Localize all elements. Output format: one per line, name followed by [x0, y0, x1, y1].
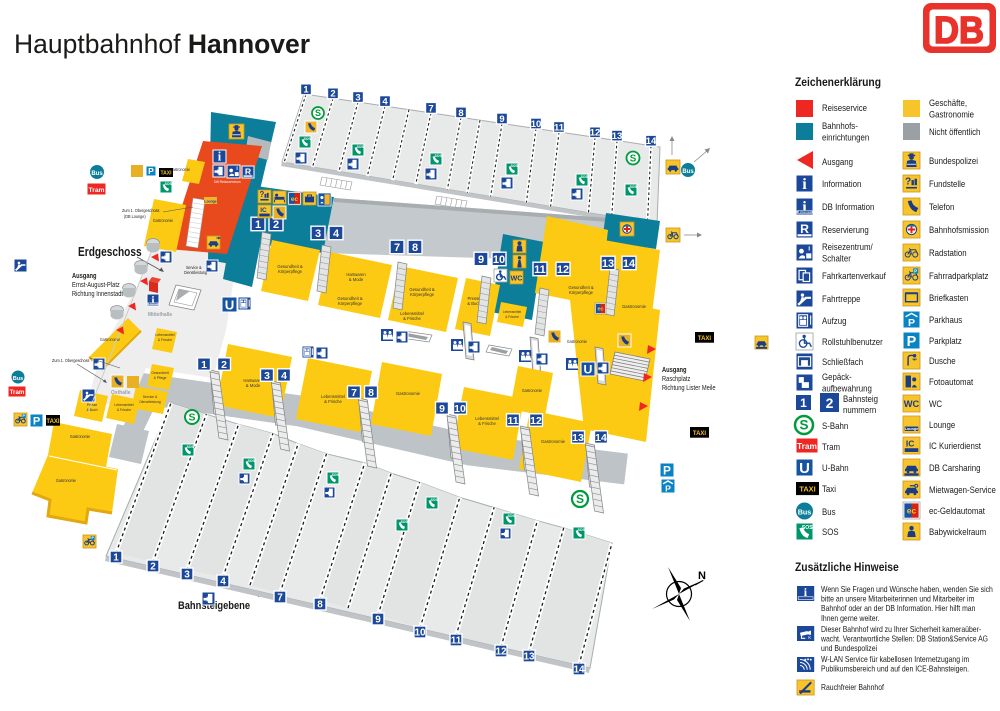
svg-text:ec: ec	[597, 306, 603, 312]
svg-text:Rauchfreier Bahnhof: Rauchfreier Bahnhof	[821, 682, 885, 692]
svg-text:12: 12	[530, 415, 542, 427]
svg-text:10: 10	[531, 119, 542, 130]
svg-text:Dusche: Dusche	[929, 355, 956, 366]
svg-text:Körperpflege: Körperpflege	[278, 269, 303, 274]
svg-text:ec-Geldautomat: ec-Geldautomat	[929, 505, 985, 516]
svg-text:8: 8	[412, 242, 418, 254]
svg-text:Lebensmittel: Lebensmittel	[114, 403, 133, 407]
svg-text:TAXI: TAXI	[698, 336, 711, 342]
svg-text:& Frische: & Frische	[505, 315, 519, 319]
svg-text:P: P	[908, 317, 915, 329]
svg-text:i: i	[808, 245, 810, 252]
svg-text:Richtung Innenstadt: Richtung Innenstadt	[72, 291, 123, 299]
svg-text:SOS: SOS	[165, 182, 173, 186]
svg-text:Gastronomie: Gastronomie	[396, 391, 421, 396]
svg-text:2: 2	[826, 395, 834, 411]
svg-text:S: S	[799, 418, 808, 433]
svg-text:13: 13	[612, 131, 623, 142]
svg-text:1: 1	[113, 553, 119, 564]
svg-text:Reservierung: Reservierung	[822, 224, 869, 235]
svg-text:SOS: SOS	[511, 164, 519, 168]
svg-text:Briefkasten: Briefkasten	[929, 292, 968, 303]
svg-text:4: 4	[333, 228, 340, 240]
svg-text:Erdgeschoss: Erdgeschoss	[78, 245, 142, 259]
svg-text:3: 3	[355, 93, 360, 104]
svg-text:11: 11	[554, 122, 565, 133]
svg-text:8: 8	[317, 600, 323, 611]
svg-text:Tram: Tram	[88, 187, 104, 194]
svg-text:& Frische: & Frische	[158, 338, 172, 342]
svg-text:14: 14	[623, 258, 636, 270]
svg-text:Service &: Service &	[143, 395, 158, 399]
svg-text:P: P	[907, 334, 917, 350]
svg-text:N: N	[698, 570, 706, 582]
svg-text:Körperpflege: Körperpflege	[410, 292, 435, 297]
svg-text:SOS: SOS	[630, 185, 638, 189]
svg-text:R: R	[245, 166, 252, 176]
svg-text:Gastronomie: Gastronomie	[541, 439, 566, 444]
svg-text:4: 4	[220, 577, 226, 588]
svg-text:Gastronomie: Gastronomie	[522, 388, 542, 393]
svg-text:Bahnhofs-: Bahnhofs-	[822, 120, 858, 131]
svg-text:i: i	[218, 150, 222, 164]
svg-text:P: P	[663, 463, 671, 477]
svg-text:K: K	[808, 635, 811, 640]
svg-text:Osthalle: Osthalle	[111, 390, 131, 396]
svg-text:SOS: SOS	[304, 137, 312, 141]
svg-text:12: 12	[495, 647, 507, 658]
svg-text:1: 1	[303, 85, 309, 96]
svg-text:DB: DB	[934, 10, 984, 52]
svg-text:Lebensmittel: Lebensmittel	[155, 333, 174, 337]
svg-text:Richtung Lister Meile: Richtung Lister Meile	[662, 385, 716, 393]
svg-text:7: 7	[394, 242, 400, 254]
svg-text:Gastronomie: Gastronomie	[567, 339, 587, 344]
svg-text:Schalter: Schalter	[822, 253, 851, 264]
svg-text:P: P	[665, 483, 671, 493]
svg-text:Zeichenerklärung: Zeichenerklärung	[795, 76, 881, 89]
svg-text:2: 2	[273, 219, 279, 231]
svg-text:Bus: Bus	[91, 171, 103, 177]
svg-text:9: 9	[499, 114, 504, 125]
svg-text:Bundespolizei: Bundespolizei	[929, 155, 978, 166]
svg-text:S: S	[630, 153, 637, 164]
svg-text:SOS: SOS	[431, 498, 439, 502]
svg-text:Gastronomie: Gastronomie	[153, 218, 173, 223]
svg-text:Mittelhalle: Mittelhalle	[148, 312, 172, 318]
svg-text:7: 7	[277, 593, 283, 604]
svg-text:Schließfach: Schließfach	[822, 356, 863, 367]
svg-text:& Frische: & Frische	[403, 316, 421, 321]
svg-text:Zum 1. Obergeschoss: Zum 1. Obergeschoss	[52, 358, 89, 363]
svg-text:Lounge: Lounge	[905, 427, 918, 431]
svg-text:U: U	[225, 297, 235, 312]
svg-text:Lebensmittel: Lebensmittel	[503, 310, 521, 314]
svg-text:Bus: Bus	[798, 508, 812, 517]
svg-text:13: 13	[523, 652, 535, 663]
svg-text:Bus: Bus	[13, 376, 24, 382]
svg-text:& Mode: & Mode	[246, 383, 261, 388]
svg-text:Babywickelraum: Babywickelraum	[929, 526, 986, 537]
svg-text:11: 11	[451, 636, 462, 647]
svg-text:nummern: nummern	[843, 404, 876, 415]
svg-text:ec: ec	[291, 196, 299, 203]
svg-text:Zum 1. Obergeschoss: Zum 1. Obergeschoss	[122, 208, 159, 213]
svg-text:U: U	[799, 460, 810, 477]
svg-text:& Frische: & Frische	[478, 421, 496, 426]
svg-text:einrichtungen: einrichtungen	[822, 132, 869, 143]
svg-text:Bahnhof oder an der DB Informa: Bahnhof oder an der DB Information. Hier…	[821, 603, 975, 613]
svg-text:Raschplatz: Raschplatz	[662, 376, 690, 384]
svg-text:Dienstleistung: Dienstleistung	[139, 400, 160, 404]
svg-text:Taxi: Taxi	[822, 483, 836, 494]
svg-text:SOS: SOS	[357, 145, 365, 149]
svg-text:i: i	[802, 176, 807, 193]
svg-text:3: 3	[315, 228, 321, 240]
svg-text:14: 14	[646, 136, 657, 147]
svg-text:TAXI: TAXI	[46, 419, 59, 425]
svg-text:14: 14	[573, 665, 585, 676]
svg-text:TAXI: TAXI	[160, 171, 172, 177]
svg-text:4: 4	[382, 97, 388, 108]
svg-text:Lounge: Lounge	[204, 200, 216, 204]
svg-text:ec: ec	[907, 506, 917, 516]
svg-text:R: R	[800, 222, 809, 236]
svg-text:WC: WC	[904, 399, 920, 409]
svg-text:10: 10	[414, 628, 426, 639]
svg-text:DB Information: DB Information	[147, 303, 160, 306]
svg-text:Fundstelle: Fundstelle	[929, 178, 965, 189]
svg-text:Ausgang: Ausgang	[662, 367, 687, 375]
svg-text:?: ?	[260, 190, 265, 199]
svg-text:14: 14	[595, 432, 607, 444]
svg-text:Aufzug: Aufzug	[822, 315, 847, 326]
svg-text:S-Bahn: S-Bahn	[822, 420, 848, 431]
svg-text:Rollstuhlbenutzer: Rollstuhlbenutzer	[822, 336, 883, 347]
svg-text:P: P	[914, 268, 917, 274]
svg-text:8: 8	[458, 108, 463, 119]
svg-text:S: S	[315, 108, 321, 118]
svg-text:aufbewahrung: aufbewahrung	[822, 383, 872, 394]
svg-text:W-LAN Service für kabellosen I: W-LAN Service für kabellosen Internetzug…	[821, 654, 969, 664]
svg-text:S: S	[576, 492, 584, 506]
svg-text:IC: IC	[260, 207, 267, 214]
svg-text:3: 3	[264, 370, 270, 382]
svg-text:2: 2	[330, 89, 335, 100]
svg-text:12: 12	[557, 264, 569, 276]
svg-text:Nicht öffentlich: Nicht öffentlich	[929, 126, 981, 137]
svg-text:Fahrradparkplatz: Fahrradparkplatz	[929, 270, 988, 281]
svg-text:Tram: Tram	[797, 441, 817, 451]
svg-text:Ihnen gerne weiter.: Ihnen gerne weiter.	[821, 613, 879, 623]
svg-text:Mietwagen-Service: Mietwagen-Service	[929, 484, 996, 495]
svg-text:Dieser Bahnhof wird zu Ihrer S: Dieser Bahnhof wird zu Ihrer Sicherheit …	[821, 624, 982, 634]
svg-text:SOS: SOS	[581, 175, 589, 179]
svg-text:Gesundheit: Gesundheit	[151, 371, 168, 375]
svg-text:4: 4	[281, 370, 287, 382]
svg-text:P: P	[33, 416, 40, 428]
svg-text:3: 3	[184, 570, 190, 581]
svg-text:Gastronomie: Gastronomie	[70, 434, 90, 439]
svg-text:Gastronomie: Gastronomie	[929, 109, 974, 120]
svg-text:Publikumsbereich und auf den I: Publikumsbereich und auf den ICE-Bahnste…	[821, 664, 969, 674]
svg-text:SOS: SOS	[508, 514, 516, 518]
svg-text:DB Reisezentrum: DB Reisezentrum	[214, 180, 241, 184]
svg-text:WC: WC	[929, 398, 942, 409]
svg-text:10: 10	[493, 254, 505, 266]
svg-text:wacht. Verantwortliche Stellen: wacht. Verantwortliche Stellen: DB Stati…	[820, 634, 988, 644]
svg-text:& Pflege: & Pflege	[154, 376, 167, 380]
svg-text:13: 13	[602, 258, 614, 270]
svg-text:& Frische: & Frische	[117, 408, 131, 412]
svg-text:Reiseservice: Reiseservice	[822, 102, 867, 113]
svg-text:Gastronomie: Gastronomie	[622, 304, 647, 309]
svg-text:S: S	[188, 412, 195, 424]
svg-text:WC: WC	[511, 274, 523, 282]
svg-text:& Frische: & Frische	[324, 399, 342, 404]
svg-text:Parkplatz: Parkplatz	[929, 335, 962, 346]
svg-text:Gepäck-: Gepäck-	[822, 371, 852, 382]
svg-text:Dienstleistung: Dienstleistung	[184, 270, 207, 275]
svg-text:?: ?	[905, 176, 911, 187]
svg-text:Bahnhofsmission: Bahnhofsmission	[929, 224, 989, 235]
svg-text:9: 9	[439, 403, 445, 415]
svg-text:& Mode: & Mode	[349, 277, 364, 282]
svg-text:IC Kurierdienst: IC Kurierdienst	[929, 440, 981, 451]
svg-text:U: U	[584, 362, 593, 376]
svg-text:10: 10	[454, 403, 466, 415]
svg-text:12: 12	[590, 128, 601, 139]
svg-text:11: 11	[507, 415, 518, 427]
svg-text:Wenn Sie Fragen und Wünsche ha: Wenn Sie Fragen und Wünsche haben, wende…	[821, 584, 993, 594]
svg-text:Ernst-August-Platz: Ernst-August-Platz	[72, 282, 120, 290]
svg-text:13: 13	[572, 432, 584, 444]
svg-text:SOS: SOS	[578, 528, 586, 532]
svg-text:TAXI: TAXI	[799, 485, 815, 494]
svg-text:DB Information: DB Information	[822, 201, 875, 212]
svg-text:Tram: Tram	[10, 389, 25, 396]
svg-text:Reisezentrum/: Reisezentrum/	[822, 241, 873, 252]
svg-text:Fahrkartenverkauf: Fahrkartenverkauf	[822, 270, 886, 281]
svg-text:U-Bahn: U-Bahn	[822, 462, 849, 473]
svg-text:8: 8	[368, 387, 374, 399]
svg-text:(DB Lounge): (DB Lounge)	[124, 214, 146, 219]
svg-text:P: P	[148, 166, 154, 176]
svg-text:Bahnsteig: Bahnsteig	[843, 393, 878, 404]
svg-text:Fotoautomat: Fotoautomat	[929, 376, 974, 387]
svg-text:Körperpflege: Körperpflege	[338, 301, 363, 306]
svg-text:Hauptbahnhof Hannover: Hauptbahnhof Hannover	[14, 29, 310, 59]
svg-text:Geschäfte,: Geschäfte,	[929, 97, 967, 108]
svg-text:Radstation: Radstation	[929, 247, 967, 258]
svg-text:Zusätzliche Hinweise: Zusätzliche Hinweise	[795, 561, 899, 574]
svg-text:SOS: SOS	[401, 520, 409, 524]
svg-text:2: 2	[221, 359, 227, 371]
svg-text:Lounge: Lounge	[929, 419, 955, 430]
svg-text:Ausgang: Ausgang	[822, 156, 853, 167]
svg-text:SOS: SOS	[248, 459, 256, 463]
svg-text:Fahrtreppe: Fahrtreppe	[822, 293, 861, 304]
svg-text:und Bundespolizei: und Bundespolizei	[821, 643, 877, 653]
svg-text:1: 1	[255, 219, 261, 231]
svg-text:11: 11	[534, 264, 546, 276]
svg-text:Parkhaus: Parkhaus	[929, 314, 963, 325]
svg-text:SOS: SOS	[332, 473, 340, 477]
svg-text:Telefon: Telefon	[929, 201, 954, 212]
svg-text:1: 1	[201, 359, 207, 371]
svg-text:SOS: SOS	[822, 526, 839, 537]
svg-text:9: 9	[478, 254, 484, 266]
svg-text:7: 7	[351, 387, 357, 399]
svg-text:DB Carsharing: DB Carsharing	[929, 462, 981, 473]
svg-text:Ausgang: Ausgang	[72, 273, 97, 281]
svg-text:Information: Information	[822, 178, 861, 189]
svg-text:DB Information: DB Information	[795, 210, 814, 214]
svg-text:9: 9	[375, 615, 381, 626]
svg-text:7: 7	[428, 103, 433, 114]
svg-text:SOS: SOS	[187, 445, 195, 449]
svg-text:2: 2	[150, 562, 156, 573]
svg-text:Gastronomie: Gastronomie	[56, 478, 76, 483]
svg-text:bitte an unsere Mitarbeiterinn: bitte an unsere Mitarbeiterinnen und Mit…	[821, 594, 974, 604]
svg-text:Bus: Bus	[682, 169, 694, 175]
svg-text:Körperpflege: Körperpflege	[569, 290, 594, 295]
svg-text:Tram: Tram	[822, 441, 840, 452]
svg-text:SOS: SOS	[435, 154, 443, 158]
svg-text:1: 1	[800, 396, 807, 410]
svg-text:IC: IC	[906, 438, 915, 448]
svg-text:Bus: Bus	[822, 506, 836, 517]
svg-text:TAXI: TAXI	[693, 431, 706, 437]
